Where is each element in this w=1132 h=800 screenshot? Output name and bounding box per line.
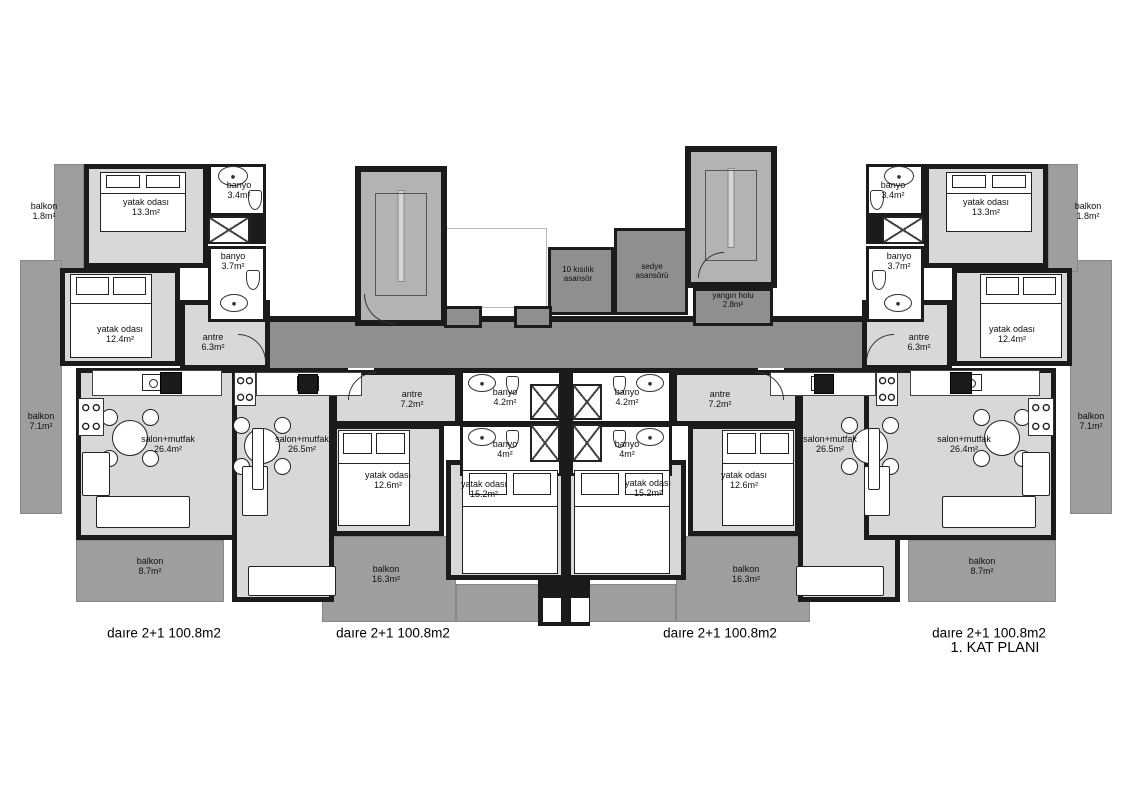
kitchen-appliance [814, 374, 834, 394]
room-u1-balkon-1-8 [54, 164, 84, 272]
room-label: balkon1.8m² [31, 201, 58, 221]
bed [70, 274, 152, 358]
room-label: balkon16.3m² [732, 564, 760, 584]
floor-plan: 1. KAT PLANI balkon1.8m²yatak odası13.3m… [0, 0, 1132, 800]
sofa [82, 452, 110, 496]
stove [876, 372, 898, 406]
room-label: balkon8.7m² [969, 556, 996, 576]
wall-notch [571, 598, 589, 622]
sofa [942, 496, 1036, 528]
bed-pillow [343, 433, 372, 454]
room-label: balkon7.1m² [1078, 411, 1105, 431]
bed-pillow [146, 175, 180, 188]
bed-blanket-line [339, 463, 409, 464]
room-label: antre6.3m² [907, 332, 930, 352]
room-label: yatak odası12.6m² [721, 470, 767, 490]
kitchen-appliance [950, 372, 972, 394]
sofa [248, 566, 336, 596]
bathroom-sink [636, 428, 664, 446]
room-label: banyo3.4m² [881, 180, 906, 200]
bed-blanket-line [947, 193, 1031, 194]
room-label: yatak odası15.2m² [461, 479, 507, 499]
shower-stall [882, 216, 924, 244]
room-label: antre6.3m² [201, 332, 224, 352]
room-light-void [445, 228, 547, 308]
room-label: yatak odası13.3m² [963, 197, 1009, 217]
kitchen-appliance [298, 374, 318, 394]
chair [882, 417, 899, 434]
bed-pillow [1023, 277, 1056, 295]
bed-pillow [113, 277, 146, 295]
room-label: banyo3.4m² [227, 180, 252, 200]
bed-blanket-line [981, 303, 1061, 304]
wall-segment [866, 216, 882, 244]
shower-stall [530, 384, 560, 420]
chair [841, 417, 858, 434]
bed-blanket-line [71, 303, 151, 304]
stair-walkline [705, 170, 756, 261]
bed-pillow [581, 473, 620, 495]
bed-blanket-line [723, 463, 793, 464]
kitchen-counter [910, 370, 1040, 396]
bed-pillow [986, 277, 1019, 295]
bathroom-sink [636, 374, 664, 392]
room-corridor [270, 320, 862, 372]
shower-stall [572, 384, 602, 420]
room-label: banyo4.2m² [615, 387, 640, 407]
bed-pillow [76, 277, 109, 295]
bed-pillow [952, 175, 986, 188]
room-label: banyo3.7m² [221, 251, 246, 271]
room-label: salon+mutfak26.5m² [803, 434, 857, 454]
room-label: yatak odası13.3m² [123, 197, 169, 217]
room-u4-balkon-7-1 [1070, 260, 1112, 514]
room-label: yangın holu2.8m² [712, 292, 753, 310]
room-label: yatak odası12.4m² [97, 324, 143, 344]
shower-stall [208, 216, 250, 244]
bed-blanket-line [101, 193, 185, 194]
room-label: yatak odası15.2m² [625, 478, 671, 498]
plan-title: 1. KAT PLANI [951, 640, 1040, 656]
chair [142, 409, 159, 426]
room-label: balkon1.8m² [1075, 201, 1102, 221]
room-label: banyo4.2m² [493, 387, 518, 407]
room-label: yatak odası12.4m² [989, 324, 1035, 344]
bed [980, 274, 1062, 358]
unit-area-label: daıre 2+1 100.8m2 [107, 626, 221, 641]
room-label: antre7.2m² [708, 389, 731, 409]
stove [234, 372, 256, 406]
unit-area-label: daıre 2+1 100.8m2 [336, 626, 450, 641]
bed-blanket-line [463, 506, 557, 507]
sofa [1022, 452, 1050, 496]
room-stair-right [685, 146, 777, 288]
room-label: banyo4m² [615, 439, 640, 459]
room-u4-balkon-1-8 [1048, 164, 1078, 272]
bathroom-sink [220, 294, 248, 312]
bed-blanket-line [575, 506, 669, 507]
room-label: balkon7.1m² [28, 411, 55, 431]
unit-area-label: daıre 2+1 100.8m2 [932, 626, 1046, 641]
wall-segment [250, 216, 266, 244]
sofa [252, 428, 264, 490]
shower-stall [572, 424, 602, 462]
room-label: salon+mutfak26.4m² [141, 434, 195, 454]
sofa [796, 566, 884, 596]
sofa [868, 428, 880, 490]
room-label: salon+mutfak26.4m² [937, 434, 991, 454]
bed-pillow [992, 175, 1026, 188]
room-label: banyo4m² [493, 439, 518, 459]
chair [233, 417, 250, 434]
room-niche-right [514, 306, 552, 328]
kitchen-appliance [160, 372, 182, 394]
room-label: sedyeasansörü [636, 263, 669, 281]
room-niche-left [444, 306, 482, 328]
bed-pillow [727, 433, 756, 454]
stove [1028, 398, 1054, 436]
shower-stall [530, 424, 560, 462]
room-label: salon+mutfak26.5m² [275, 434, 329, 454]
sofa [96, 496, 190, 528]
room-u1-balkon-7-1 [20, 260, 62, 514]
bed-pillow [760, 433, 789, 454]
kitchen-counter [92, 370, 222, 396]
room-label: 10 kısılıkasansör [562, 266, 594, 284]
room-label: yatak odası12.6m² [365, 470, 411, 490]
unit-area-label: daıre 2+1 100.8m2 [663, 626, 777, 641]
chair [973, 409, 990, 426]
chair [274, 458, 291, 475]
chair [274, 417, 291, 434]
bathroom-sink [884, 294, 912, 312]
stair-walkline [375, 193, 426, 297]
bed-pillow [513, 473, 552, 495]
stove [78, 398, 104, 436]
chair [841, 458, 858, 475]
bed-pillow [376, 433, 405, 454]
wall-notch [543, 598, 561, 622]
room-label: banyo3.7m² [887, 251, 912, 271]
room-label: balkon8.7m² [137, 556, 164, 576]
bed-pillow [106, 175, 140, 188]
room-label: antre7.2m² [400, 389, 423, 409]
room-label: balkon16.3m² [372, 564, 400, 584]
